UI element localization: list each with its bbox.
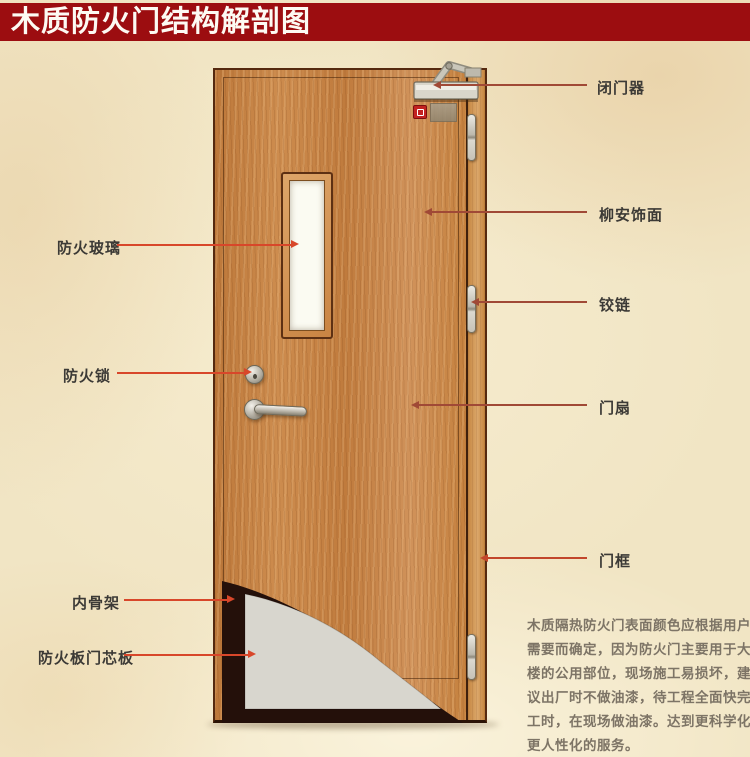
callout-label-door-closer: 闭门器 [597,77,645,98]
callout-label-door-leaf: 门扇 [599,397,631,418]
closer-pivot [446,63,452,69]
callout-line-lauan-veneer [431,211,587,213]
callout-line-fire-glass [117,244,291,246]
callout-line-door-closer [440,84,587,86]
callout-label-fire-lock: 防火锁 [63,365,111,386]
title-banner: 木质防火门结构解剖图 [0,3,750,41]
description-line: 楼的公用部位，现场施工易损坏，建 [527,662,750,686]
fire-glass-window [281,172,333,339]
door-closer-icon [397,58,497,104]
callout-arrow-fire-glass [291,240,299,248]
description-line: 更人性化的服务。 [527,734,750,757]
hinge-top-icon [467,114,476,161]
seal-patch [430,103,457,122]
door-illustration [213,68,487,723]
callout-label-hinge: 铰链 [599,294,631,315]
infographic-page: 木质防火门结构解剖图 [0,0,750,757]
page-title: 木质防火门结构解剖图 [0,3,750,41]
callout-label-fire-glass: 防火玻璃 [57,237,121,258]
callout-arrow-fire-board-core [248,650,256,658]
glass-pane [289,180,325,331]
description-line: 需要而确定，因为防火门主要用于大 [527,638,750,662]
callout-line-fire-lock [117,372,244,374]
fire-sign-icon [413,105,427,119]
closer-bracket [465,68,481,77]
description-paragraph: 木质隔热防火门表面颜色应根据用户 需要而确定，因为防火门主要用于大 楼的公用部位… [527,614,750,757]
callout-label-door-frame: 门框 [599,550,631,571]
callout-line-fire-board-core [124,654,248,656]
callout-line-inner-skeleton [124,599,227,601]
callout-line-hinge [478,301,587,303]
callout-arrow-inner-skeleton [227,595,235,603]
fire-board-core-panel [245,594,441,709]
callout-arrow-fire-lock [244,368,252,376]
callout-label-lauan-veneer: 柳安饰面 [599,204,663,225]
description-line: 木质隔热防火门表面颜色应根据用户 [527,614,750,638]
callout-line-door-frame [487,557,587,559]
callout-label-fire-board-core: 防火板门芯板 [38,647,134,668]
callout-line-door-leaf [418,404,587,406]
hinge-middle-icon [467,285,476,333]
callout-label-inner-skeleton: 内骨架 [72,592,120,613]
description-line: 议出厂时不做油漆，待工程全面快完 [527,686,750,710]
description-line: 工时，在现场做油漆。达到更科学化 [527,710,750,734]
